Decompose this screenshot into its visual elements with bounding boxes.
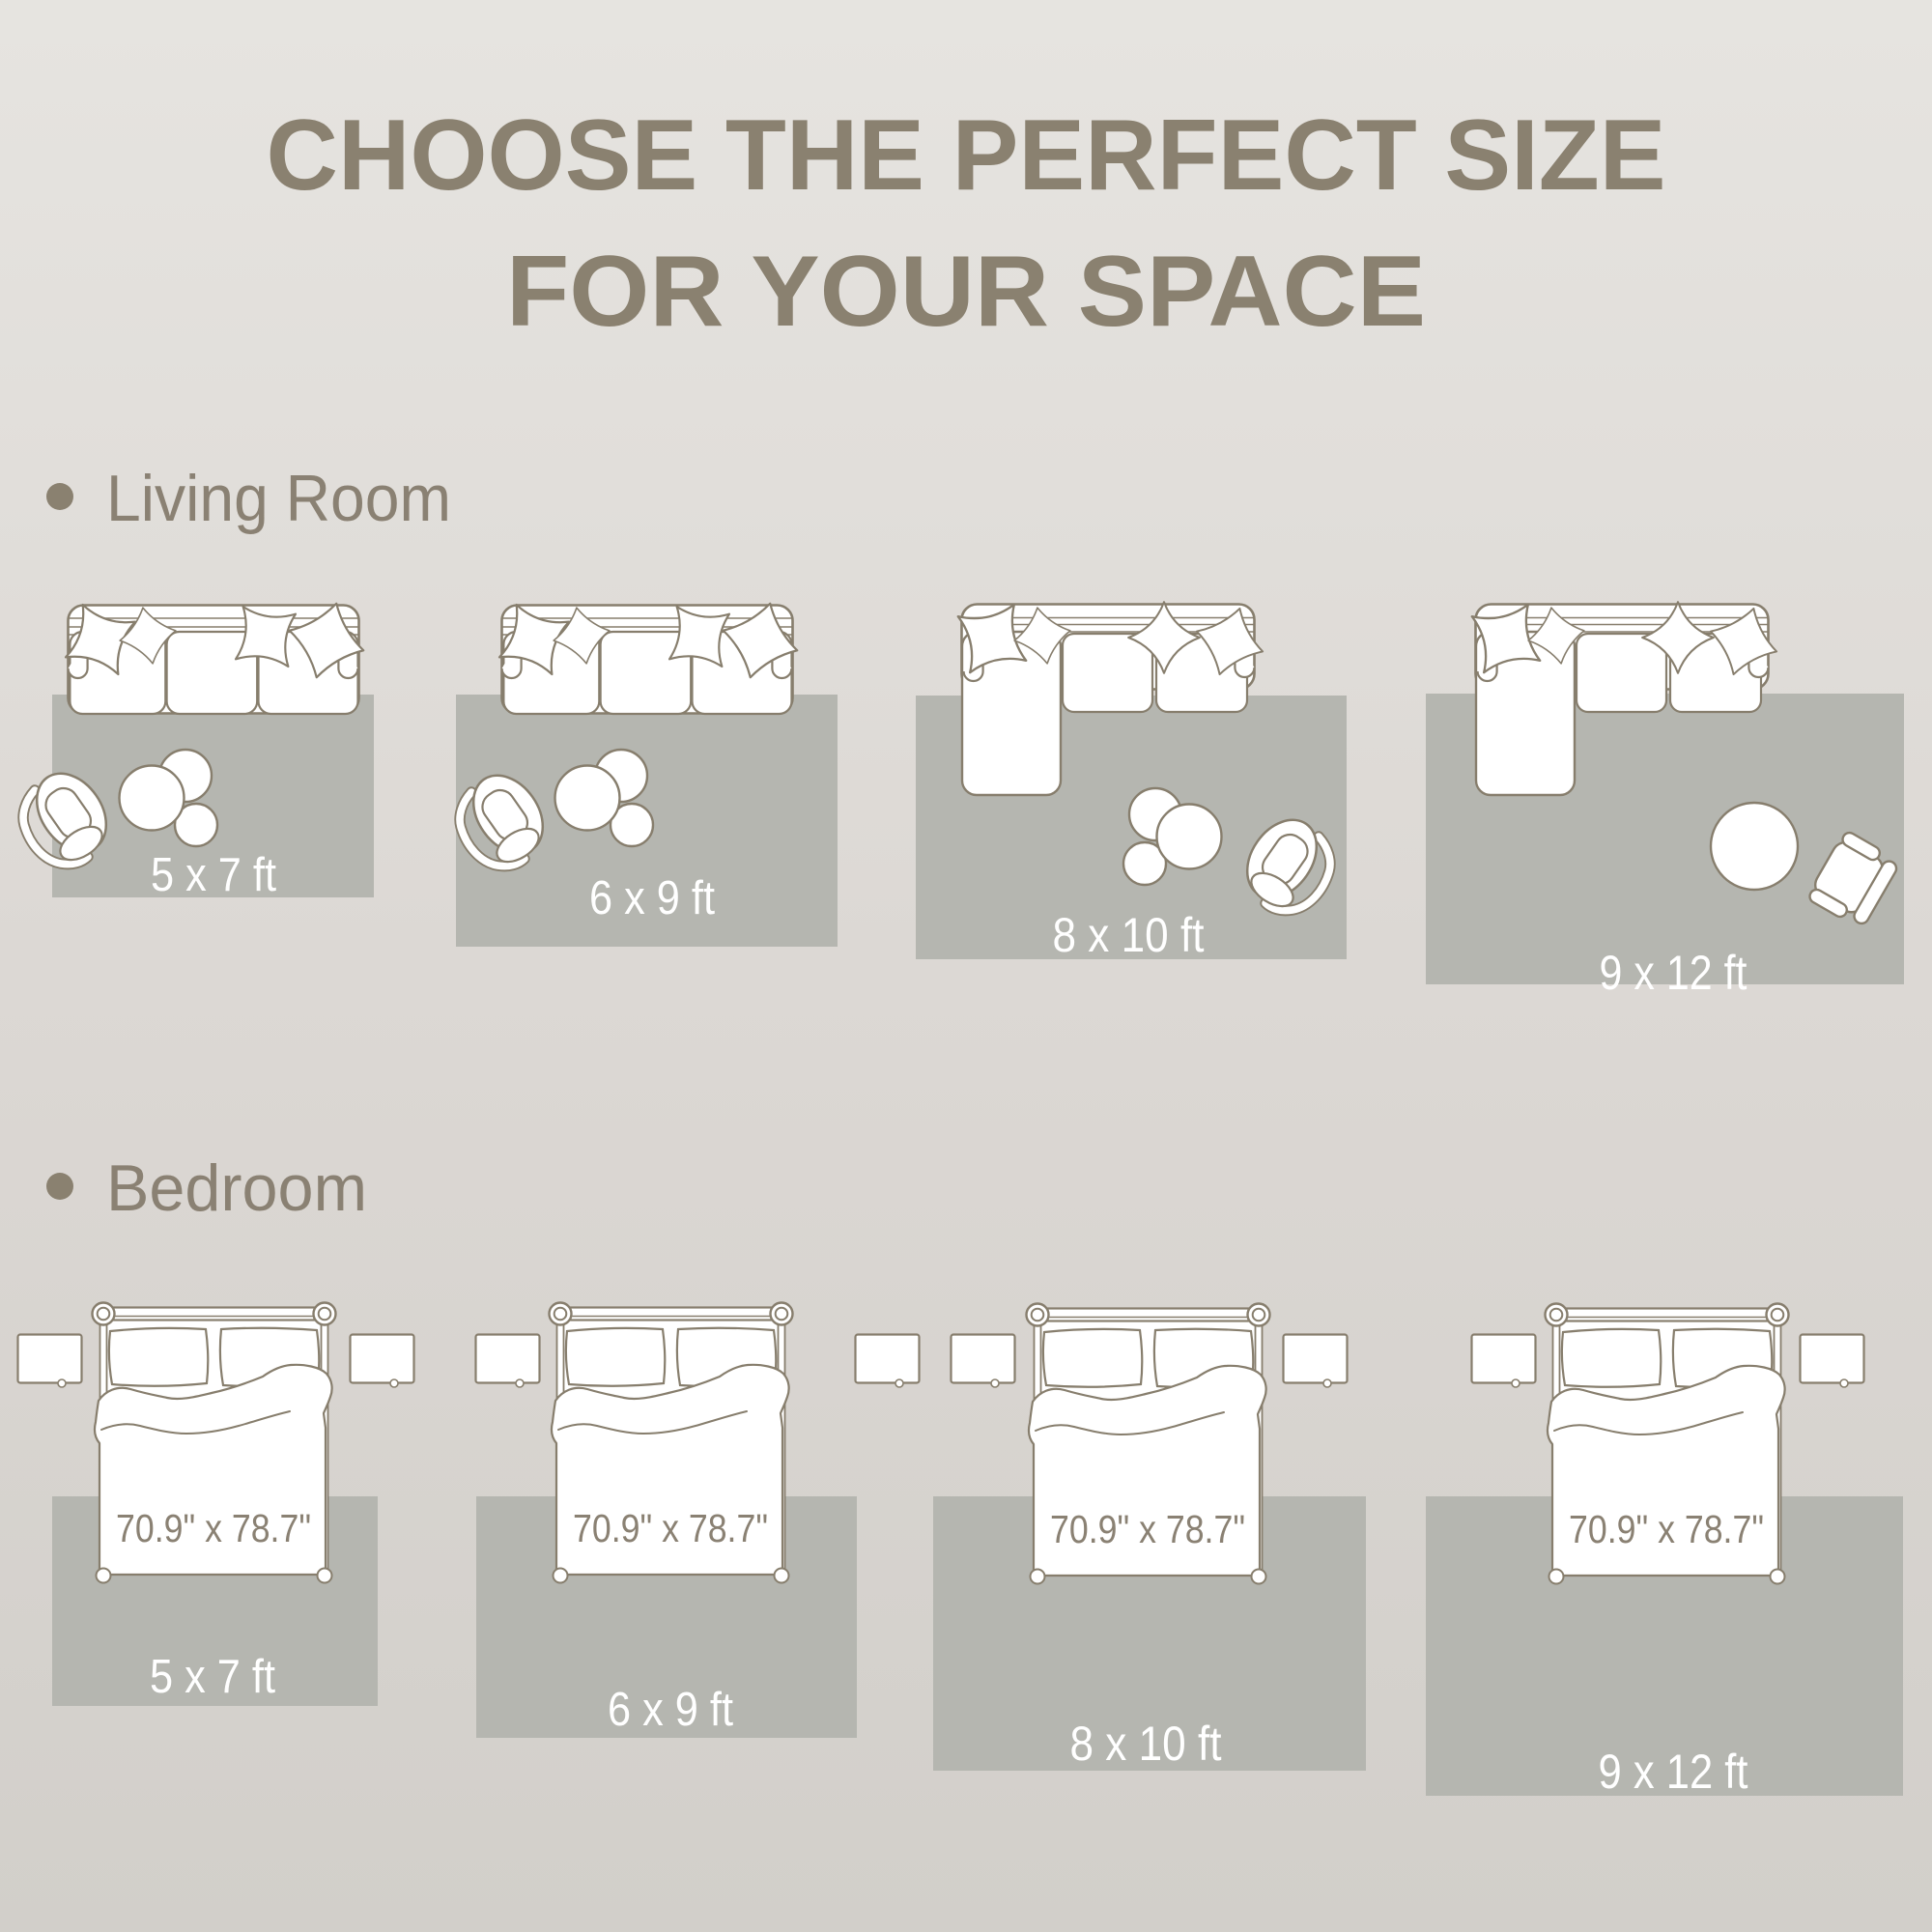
svg-text:Living Room: Living Room xyxy=(106,462,451,535)
svg-text:9 x 12 ft: 9 x 12 ft xyxy=(1599,1745,1748,1799)
svg-text:70.9" x 78.7": 70.9" x 78.7" xyxy=(573,1506,768,1550)
svg-text:Bedroom: Bedroom xyxy=(106,1151,367,1225)
svg-text:8 x 10 ft: 8 x 10 ft xyxy=(1053,908,1205,962)
svg-text:5 x 7 ft: 5 x 7 ft xyxy=(151,849,276,901)
svg-text:FOR YOUR SPACE: FOR YOUR SPACE xyxy=(506,236,1426,348)
svg-text:8 x 10 ft: 8 x 10 ft xyxy=(1070,1717,1222,1771)
svg-text:5 x 7 ft: 5 x 7 ft xyxy=(150,1651,275,1703)
svg-text:6 x 9 ft: 6 x 9 ft xyxy=(589,872,715,924)
svg-text:CHOOSE THE PERFECT SIZE: CHOOSE THE PERFECT SIZE xyxy=(267,99,1666,212)
svg-text:70.9" x 78.7": 70.9" x 78.7" xyxy=(1050,1507,1245,1551)
svg-text:70.9" x 78.7": 70.9" x 78.7" xyxy=(1569,1507,1764,1551)
svg-text:9 x 12 ft: 9 x 12 ft xyxy=(1600,946,1747,1000)
svg-text:6 x 9 ft: 6 x 9 ft xyxy=(608,1684,733,1736)
svg-text:70.9" x 78.7": 70.9" x 78.7" xyxy=(116,1506,311,1550)
